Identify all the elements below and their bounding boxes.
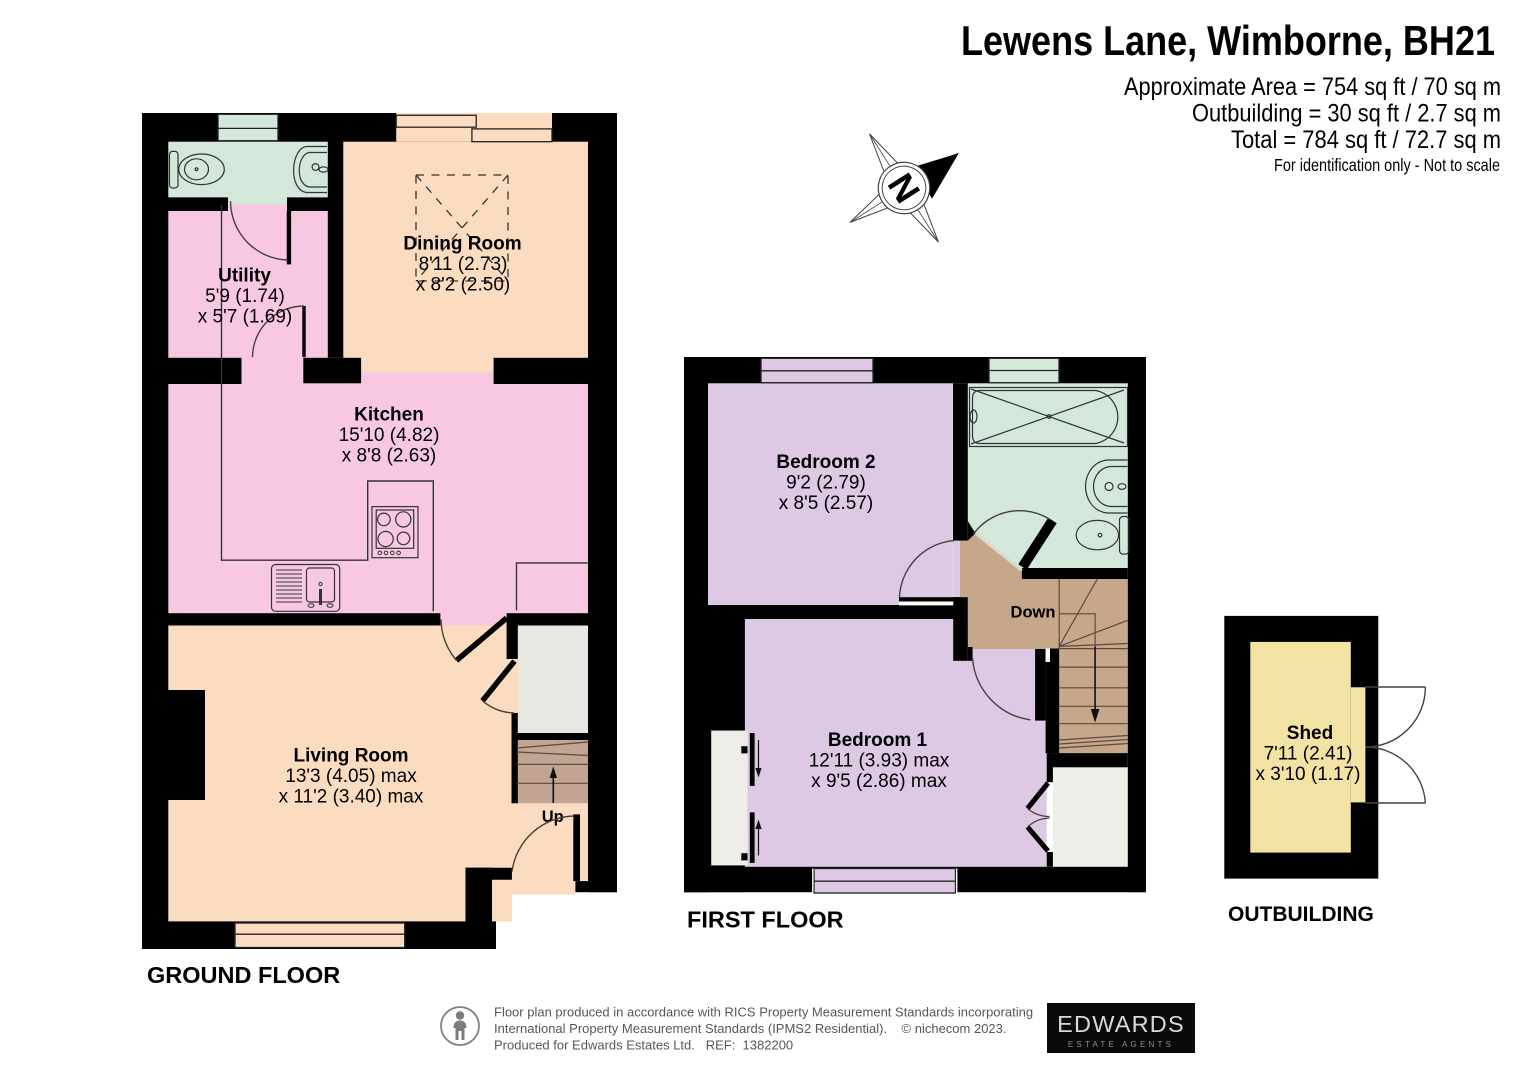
- svg-text:EDWARDS: EDWARDS: [1057, 1011, 1185, 1037]
- svg-text:Approximate Area = 754 sq ft /: Approximate Area = 754 sq ft / 70 sq m: [1124, 73, 1501, 101]
- svg-text:x 8'2 (2.50): x 8'2 (2.50): [416, 275, 510, 296]
- svg-text:Produced for Edwards Estates L: Produced for Edwards Estates Ltd. REF: 1…: [494, 1038, 793, 1053]
- svg-text:Down: Down: [1011, 604, 1056, 622]
- svg-text:7'11 (2.41): 7'11 (2.41): [1264, 744, 1353, 765]
- svg-text:x 8'8 (2.63): x 8'8 (2.63): [342, 446, 436, 467]
- svg-text:International Property Measure: International Property Measurement Stand…: [494, 1021, 1007, 1036]
- svg-text:5'9 (1.74): 5'9 (1.74): [205, 286, 285, 307]
- svg-text:Total = 784 sq ft / 72.7 sq m: Total = 784 sq ft / 72.7 sq m: [1231, 126, 1501, 154]
- svg-text:15'10 (4.82): 15'10 (4.82): [339, 425, 440, 446]
- svg-text:13'3 (4.05) max: 13'3 (4.05) max: [285, 766, 417, 787]
- svg-text:8'11 (2.73): 8'11 (2.73): [419, 254, 508, 275]
- svg-text:Kitchen: Kitchen: [354, 405, 424, 426]
- svg-text:Shed: Shed: [1287, 723, 1333, 744]
- svg-text:x 9'5 (2.86) max: x 9'5 (2.86) max: [811, 771, 947, 792]
- svg-text:FIRST FLOOR: FIRST FLOOR: [687, 907, 844, 933]
- svg-text:x 8'5 (2.57): x 8'5 (2.57): [779, 493, 873, 514]
- svg-text:For identification only - Not: For identification only - Not to scale: [1274, 155, 1500, 175]
- svg-text:Bedroom 2: Bedroom 2: [776, 452, 875, 473]
- svg-text:x 11'2 (3.40) max: x 11'2 (3.40) max: [279, 787, 424, 808]
- svg-text:Dining Room: Dining Room: [403, 234, 521, 255]
- svg-text:Bedroom 1: Bedroom 1: [828, 730, 928, 751]
- svg-text:OUTBUILDING: OUTBUILDING: [1228, 903, 1374, 926]
- svg-text:Lewens Lane, Wimborne, BH21: Lewens Lane, Wimborne, BH21: [961, 17, 1495, 64]
- svg-text:Floor plan produced in accorda: Floor plan produced in accordance with R…: [494, 1005, 1033, 1020]
- svg-text:12'11 (3.93) max: 12'11 (3.93) max: [809, 751, 950, 772]
- svg-text:x 5'7 (1.69): x 5'7 (1.69): [198, 307, 292, 328]
- svg-text:ESTATE AGENTS: ESTATE AGENTS: [1068, 1040, 1174, 1049]
- svg-text:GROUND FLOOR: GROUND FLOOR: [147, 962, 340, 988]
- svg-text:Living Room: Living Room: [293, 746, 408, 767]
- svg-text:Utility: Utility: [218, 266, 271, 287]
- svg-text:Outbuilding = 30 sq ft / 2.7 s: Outbuilding = 30 sq ft / 2.7 sq m: [1192, 100, 1501, 128]
- svg-text:9'2 (2.79): 9'2 (2.79): [786, 473, 866, 494]
- svg-text:x 3'10 (1.17): x 3'10 (1.17): [1255, 764, 1360, 785]
